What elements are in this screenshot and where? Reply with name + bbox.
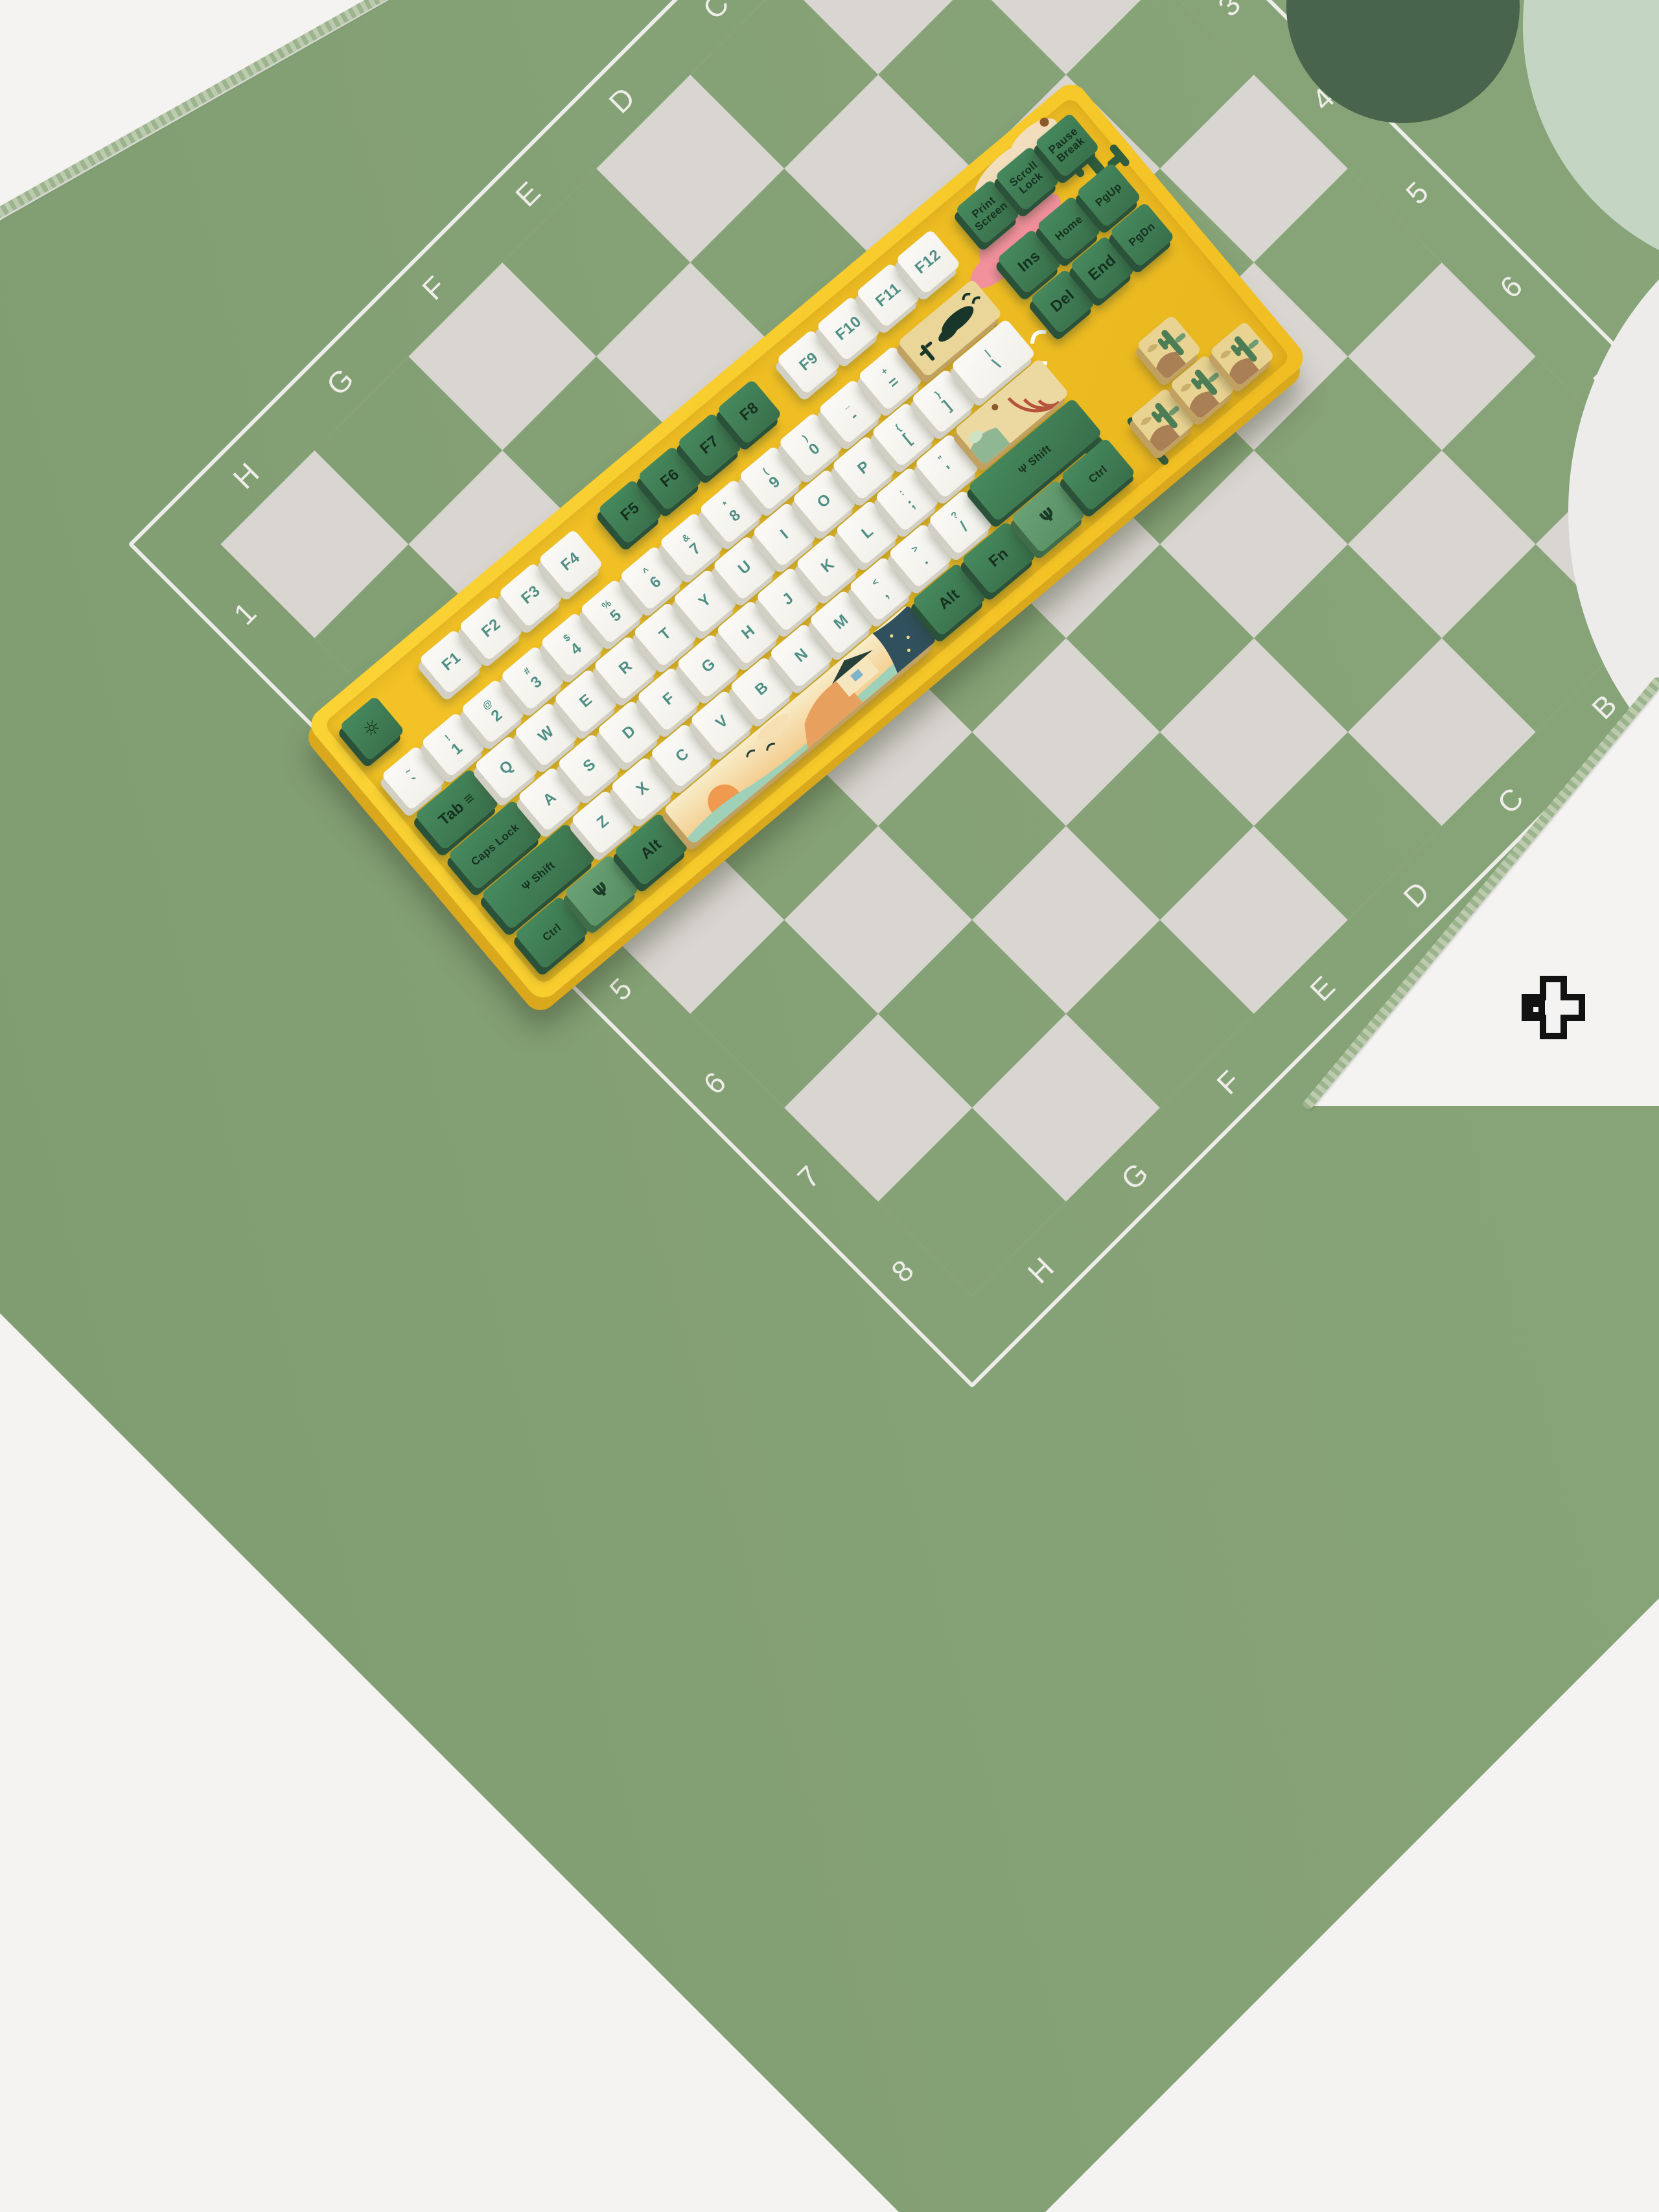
- key-legend: F11: [873, 281, 904, 310]
- key-legend: F5: [618, 500, 643, 524]
- key-legend: Ins: [1015, 248, 1043, 275]
- key-legend: 5: [608, 607, 625, 625]
- cactus-icon: Ψ: [1037, 504, 1061, 529]
- key-legend: T: [656, 625, 674, 643]
- key-legend: K: [818, 556, 837, 575]
- key-shift-legend: :: [897, 487, 906, 497]
- key-legend: ': [944, 463, 957, 478]
- key-legend: F6: [658, 467, 682, 490]
- key-legend: U: [736, 558, 754, 577]
- key-legend: /: [957, 519, 971, 534]
- key-legend: [: [900, 431, 914, 446]
- key-legend: Z: [594, 813, 612, 831]
- key-shift-legend: (: [761, 467, 770, 476]
- key-legend: 6: [647, 573, 664, 592]
- key-legend: \: [990, 356, 1004, 371]
- key-legend: End: [1085, 252, 1119, 284]
- key-legend: F10: [833, 314, 864, 343]
- key-legend: 0: [806, 441, 823, 459]
- key-legend: Tab ≡: [436, 790, 478, 829]
- key-legend: L: [859, 524, 876, 542]
- key-shift-legend: !: [443, 733, 452, 743]
- key-legend: G: [699, 656, 719, 676]
- key-legend: W: [535, 724, 557, 746]
- key-legend: Alt: [936, 586, 962, 612]
- key-legend: Ψ Shift: [1017, 443, 1054, 477]
- key-legend: M: [831, 612, 852, 632]
- key-legend: S: [581, 756, 599, 775]
- key-legend: C: [673, 746, 692, 765]
- key-legend: 7: [687, 540, 704, 559]
- key-legend: ,: [878, 586, 892, 601]
- key-legend: Q: [497, 757, 516, 778]
- key-legend: Ctrl: [540, 922, 563, 944]
- key-legend: F1: [439, 650, 464, 674]
- key-legend: H: [739, 623, 758, 642]
- key-legend: F2: [479, 616, 504, 640]
- key-legend: PgUp: [1093, 181, 1124, 209]
- key-legend: PgDn: [1127, 220, 1157, 248]
- key-legend: V: [713, 713, 731, 732]
- key-legend: Home: [1053, 214, 1085, 243]
- cactus-icon: Ψ: [590, 879, 614, 903]
- key-legend: O: [815, 491, 834, 511]
- key-legend: J: [780, 590, 796, 608]
- key-legend: 9: [767, 474, 783, 492]
- key-legend: A: [540, 789, 559, 809]
- key-legend: P: [855, 458, 873, 477]
- key-legend: B: [752, 679, 771, 698]
- key-shift-legend: ): [801, 433, 810, 443]
- key-legend: -: [847, 408, 861, 424]
- key-legend: E: [577, 691, 595, 710]
- key-legend: 1: [448, 740, 465, 758]
- key-legend: Alt: [638, 836, 664, 862]
- key-shift-legend: |: [983, 348, 992, 358]
- key-legend: .: [918, 553, 931, 568]
- key-legend: F9: [796, 350, 821, 374]
- key-legend: Caps Lock: [469, 822, 522, 868]
- key-legend: ]: [940, 398, 955, 413]
- key-legend: X: [634, 779, 652, 798]
- key-legend: N: [792, 646, 811, 665]
- key-legend: R: [616, 658, 635, 677]
- key-legend: Scroll Lock: [1002, 155, 1052, 203]
- key-legend: Ψ Shift: [520, 859, 557, 893]
- key-legend: Fn: [986, 546, 1012, 570]
- key-legend: Del: [1048, 287, 1077, 316]
- key-legend: F7: [697, 433, 722, 457]
- key-legend: 2: [489, 707, 505, 725]
- photo-scene: { "scene": { "description": "Yellow dese…: [0, 0, 1659, 1106]
- key-legend: 3: [528, 674, 545, 692]
- key-legend: I: [778, 527, 791, 542]
- key-legend: F8: [737, 400, 761, 424]
- key-legend: 8: [726, 507, 743, 525]
- key-legend: `: [410, 775, 424, 790]
- key-legend: F: [660, 690, 678, 708]
- key-legend: F4: [559, 549, 583, 573]
- key-legend: Ctrl: [1087, 463, 1109, 485]
- key-legend: Y: [696, 592, 714, 610]
- key-legend: 4: [568, 640, 585, 658]
- key-legend: ;: [904, 496, 918, 511]
- key-legend: =: [885, 374, 903, 392]
- key-legend: F3: [518, 583, 543, 607]
- key-legend: F12: [912, 247, 944, 277]
- plus-cross-logo: [1520, 975, 1587, 1043]
- key-legend: D: [620, 722, 638, 742]
- sun-icon: ☼: [358, 714, 386, 743]
